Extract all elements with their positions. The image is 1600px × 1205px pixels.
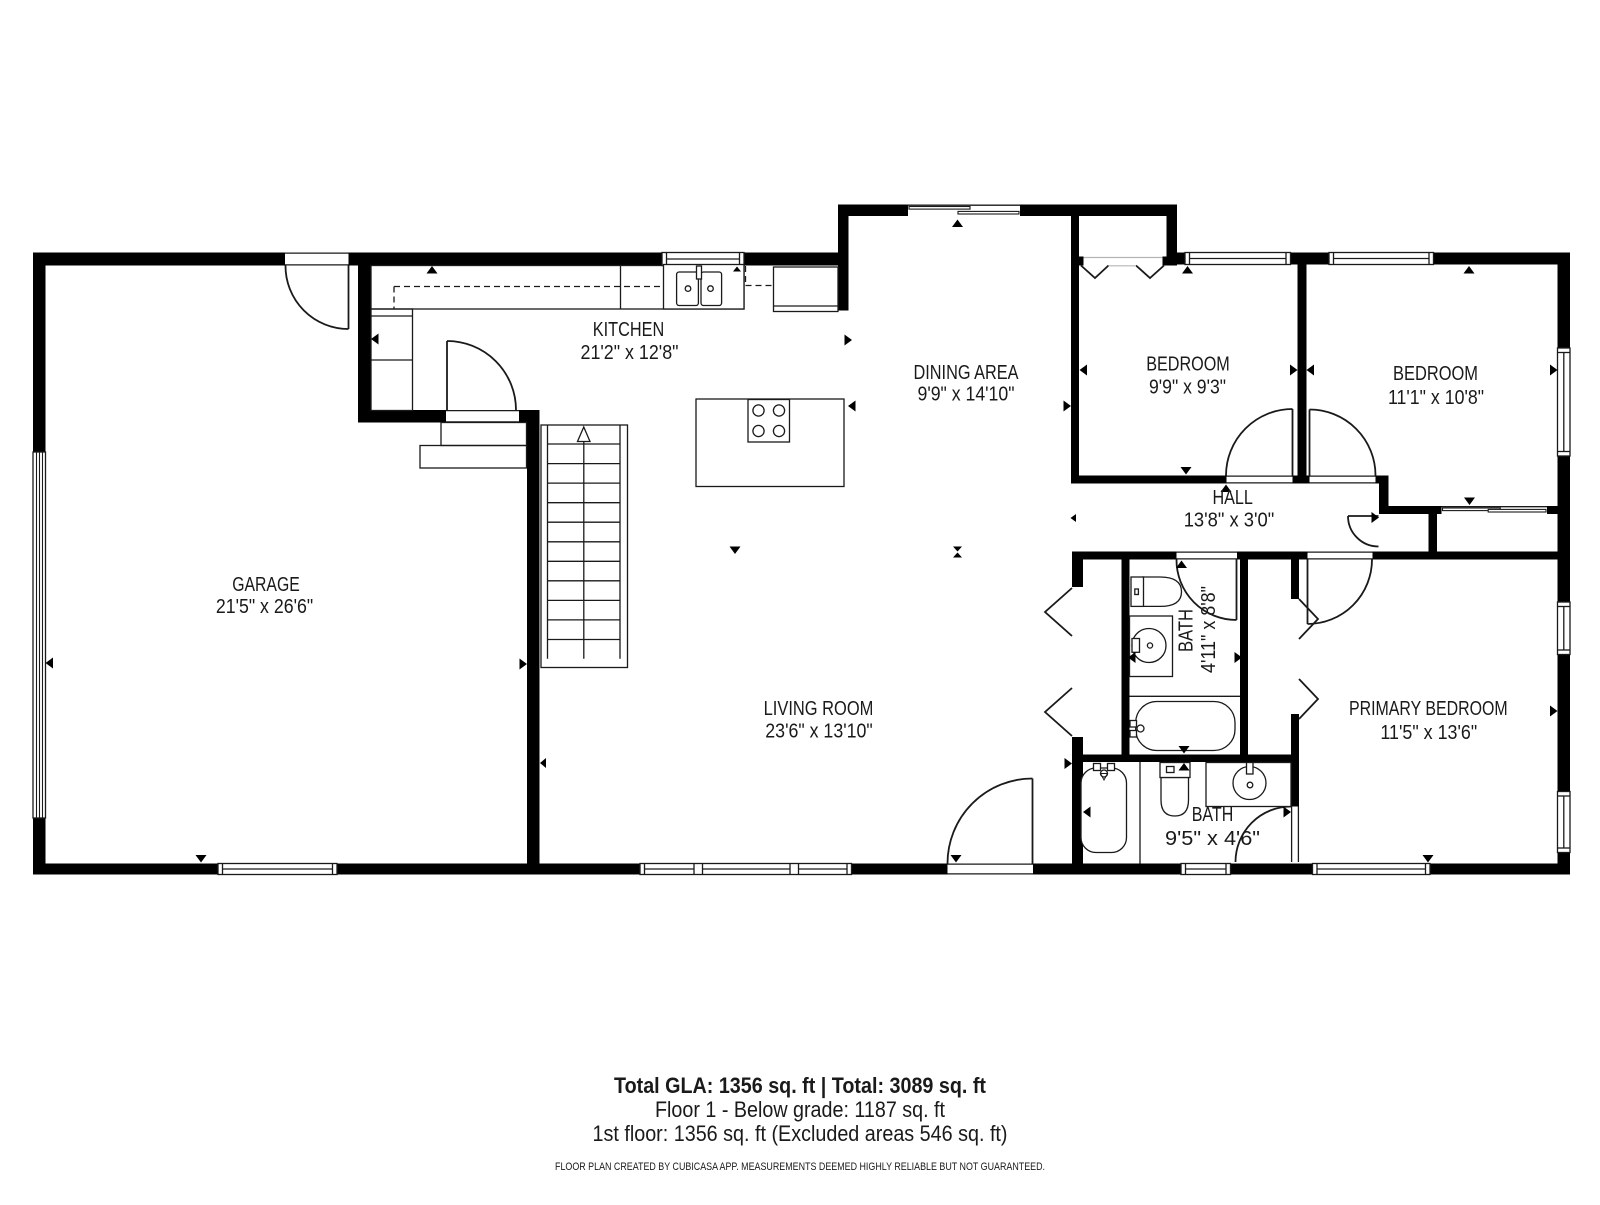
- svg-text:Total GLA: 1356 sq. ft | Total: Total GLA: 1356 sq. ft | Total: 3089 sq.…: [614, 1073, 987, 1098]
- svg-text:DINING AREA: DINING AREA: [914, 362, 1020, 384]
- svg-text:BATH: BATH: [1192, 804, 1234, 826]
- svg-text:23'6" x 13'10": 23'6" x 13'10": [765, 721, 872, 743]
- svg-text:11'5" x 13'6": 11'5" x 13'6": [1380, 722, 1477, 744]
- svg-text:9'9" x 9'3": 9'9" x 9'3": [1149, 377, 1226, 399]
- svg-text:BEDROOM: BEDROOM: [1146, 354, 1230, 376]
- svg-text:9'5" x 4'6": 9'5" x 4'6": [1165, 828, 1260, 850]
- svg-text:1st floor: 1356 sq. ft (Exclud: 1st floor: 1356 sq. ft (Excluded areas 5…: [593, 1121, 1008, 1146]
- svg-text:KITCHEN: KITCHEN: [593, 319, 664, 341]
- svg-text:PRIMARY BEDROOM: PRIMARY BEDROOM: [1349, 698, 1508, 720]
- svg-text:11'1" x 10'8": 11'1" x 10'8": [1388, 387, 1484, 409]
- svg-text:21'2" x 12'8": 21'2" x 12'8": [581, 342, 679, 364]
- svg-text:LIVING ROOM: LIVING ROOM: [764, 698, 874, 720]
- svg-text:BATH: BATH: [1176, 609, 1198, 652]
- svg-text:21'5" x 26'6": 21'5" x 26'6": [216, 596, 313, 618]
- svg-text:13'8" x 3'0": 13'8" x 3'0": [1184, 510, 1275, 532]
- svg-text:FLOOR PLAN CREATED BY CUBICASA: FLOOR PLAN CREATED BY CUBICASA APP. MEAS…: [555, 1161, 1045, 1173]
- svg-text:Floor 1 - Below grade: 1187 sq: Floor 1 - Below grade: 1187 sq. ft: [655, 1097, 945, 1122]
- svg-text:HALL: HALL: [1212, 487, 1253, 509]
- svg-text:9'9" x 14'10": 9'9" x 14'10": [918, 384, 1015, 406]
- svg-text:BEDROOM: BEDROOM: [1393, 363, 1478, 385]
- svg-text:GARAGE: GARAGE: [232, 574, 300, 596]
- svg-text:4'11" x 8'8": 4'11" x 8'8": [1198, 586, 1220, 673]
